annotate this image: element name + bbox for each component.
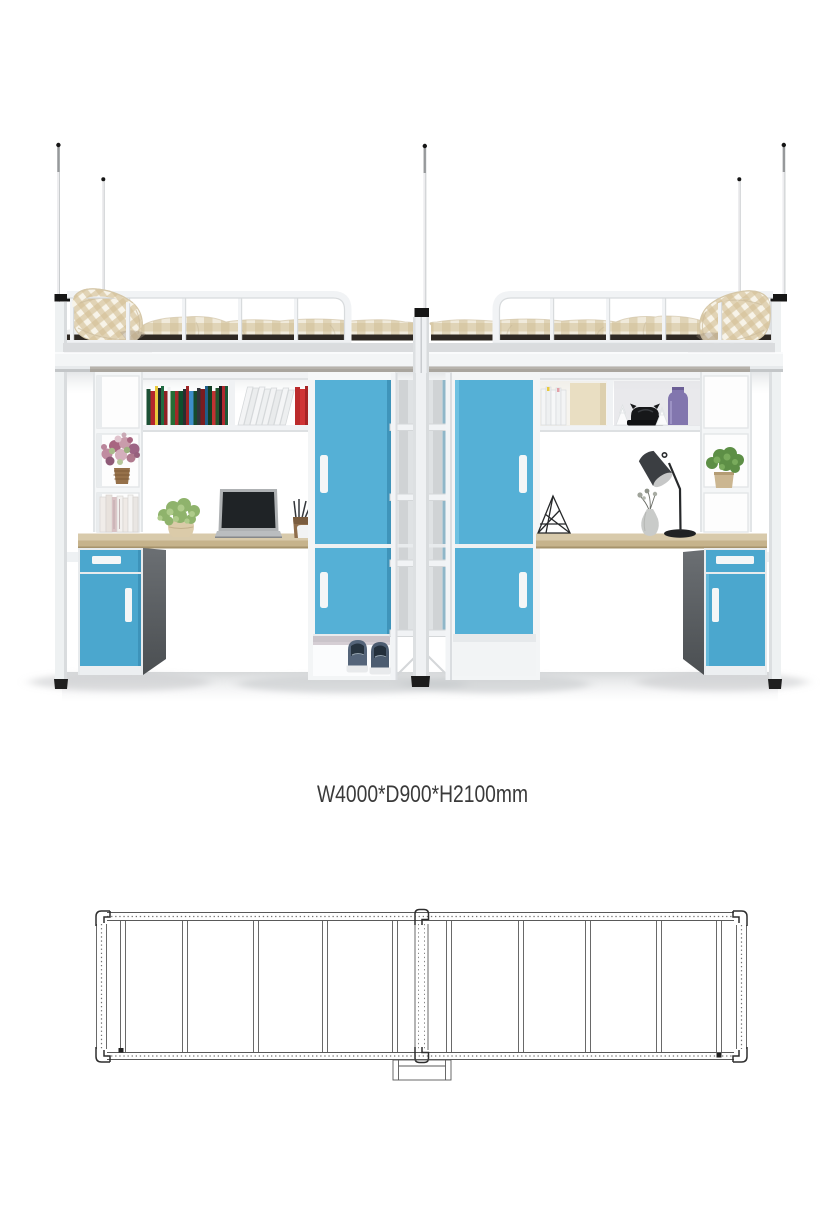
svg-text:W4000*D900*H2100mm: W4000*D900*H2100mm — [317, 781, 528, 808]
